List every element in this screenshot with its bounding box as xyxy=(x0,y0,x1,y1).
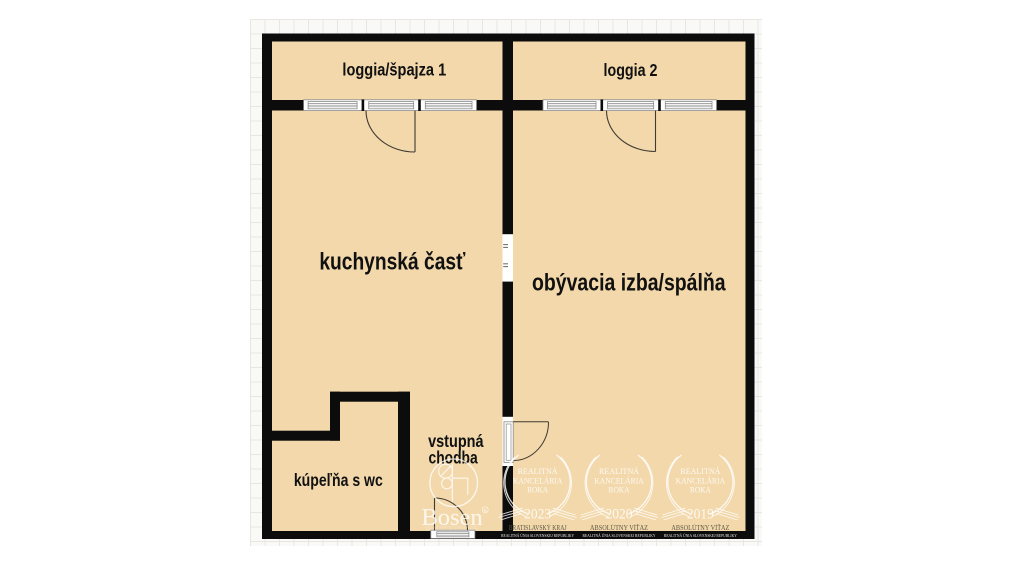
svg-text:2019: 2019 xyxy=(687,506,714,522)
svg-text:2020: 2020 xyxy=(606,506,633,522)
svg-text:ROKA: ROKA xyxy=(609,486,630,495)
svg-text:obývacia izba/spálňa: obývacia izba/spálňa xyxy=(532,269,726,296)
svg-text:KANCELÁRIA: KANCELÁRIA xyxy=(594,476,644,486)
svg-text:REALITNÁ ÚNIA SLOVENSKEJ REPUB: REALITNÁ ÚNIA SLOVENSKEJ REPUBLIKY xyxy=(501,533,575,538)
svg-text:ROKA: ROKA xyxy=(690,486,711,495)
svg-text:2023: 2023 xyxy=(524,506,551,522)
svg-text:loggia/špajza 1: loggia/špajza 1 xyxy=(342,60,446,80)
svg-text:REALITNÁ: REALITNÁ xyxy=(599,466,639,476)
svg-text:ROKA: ROKA xyxy=(527,486,548,495)
svg-text:REALITNÁ ÚNIA SLOVENSKEJ REPUB: REALITNÁ ÚNIA SLOVENSKEJ REPUBLIKY xyxy=(583,533,657,538)
svg-text:kuchynská časť: kuchynská časť xyxy=(319,247,465,275)
svg-text:chodba: chodba xyxy=(429,448,479,468)
svg-text:kúpeľňa s wc: kúpeľňa s wc xyxy=(294,471,383,491)
svg-text:KANCELÁRIA: KANCELÁRIA xyxy=(513,476,563,486)
svg-text:ABSOLÚTNY VÍŤAZ: ABSOLÚTNY VÍŤAZ xyxy=(590,524,648,532)
svg-text:REALITNÁ: REALITNÁ xyxy=(680,466,720,476)
svg-text:REALITNÁ ÚNIA SLOVENSKEJ REPUB: REALITNÁ ÚNIA SLOVENSKEJ REPUBLIKY xyxy=(664,533,738,538)
svg-text:KANCELÁRIA: KANCELÁRIA xyxy=(676,476,726,486)
svg-text:R: R xyxy=(484,508,487,513)
svg-text:ABSOLÚTNY VÍŤAZ: ABSOLÚTNY VÍŤAZ xyxy=(671,524,729,532)
svg-text:loggia 2: loggia 2 xyxy=(603,60,657,80)
svg-text:REALITNÁ: REALITNÁ xyxy=(518,466,558,476)
svg-text:REALITY & FINANCIE: REALITY & FINANCIE xyxy=(426,526,479,531)
svg-text:BRATISLAVSKÝ KRAJ: BRATISLAVSKÝ KRAJ xyxy=(509,524,567,532)
